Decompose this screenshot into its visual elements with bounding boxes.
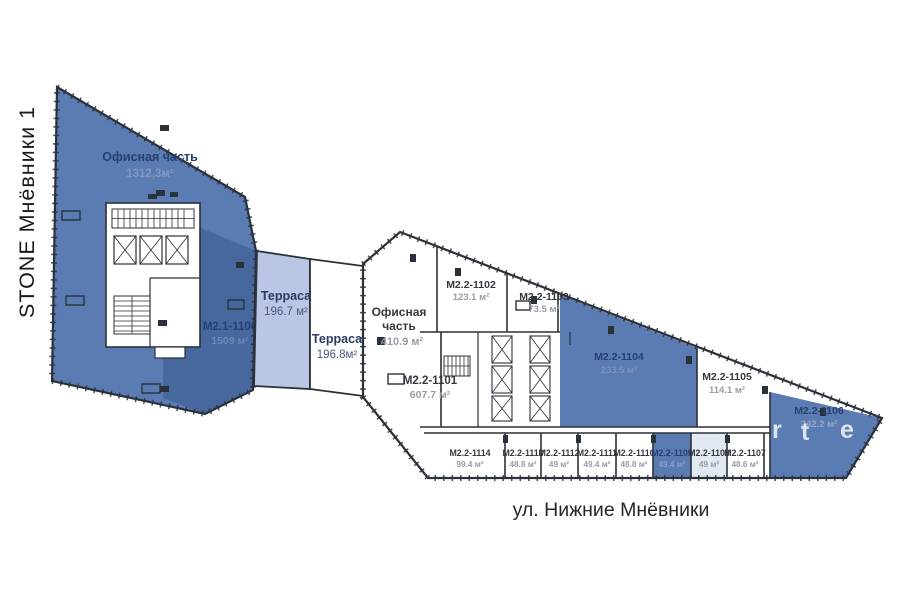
unit-area-m22-1113: 48.8 м² bbox=[510, 460, 537, 469]
elevator-icon bbox=[530, 336, 550, 421]
elevator-icon bbox=[114, 236, 136, 264]
floor-plan-page: Офисная часть 1312,3м² M2.1-1100 1509 м²… bbox=[0, 0, 900, 604]
right-office-area: 410.9 м² bbox=[381, 336, 424, 348]
left-office-area: 1312,3м² bbox=[126, 168, 174, 180]
core-lobby-exit bbox=[155, 347, 185, 358]
unit-area-m22-1109: 49.4 м² bbox=[659, 460, 686, 469]
unit-area-m22-1102: 123.1 м² bbox=[453, 292, 490, 303]
unit-area-m22-1114: 99.4 м² bbox=[457, 460, 484, 469]
unit-label-m22-1104: M2.2-1104 bbox=[594, 351, 644, 363]
unit-label-m22-1105: M2.2-1105 bbox=[702, 371, 752, 383]
unit-label-m22-1106: M2.2-1106 bbox=[794, 405, 844, 417]
terrace-1-label: Терраса bbox=[261, 289, 312, 303]
elevator-icon bbox=[140, 236, 162, 264]
unit-area-m22-1111: 49.4 м² bbox=[584, 460, 611, 469]
unit-label-m22-1107: M2.2-1107 bbox=[724, 448, 766, 458]
unit-label-m22-1109: M2.2-1109 bbox=[651, 448, 693, 458]
terrace-1-area: 196.7 м² bbox=[264, 306, 308, 318]
unit-label-m22-1112: M2.2-1112 bbox=[538, 448, 579, 458]
stairs-icon bbox=[114, 296, 150, 334]
unit-region-m22-1101[interactable] bbox=[365, 250, 437, 476]
unit-area-m22-1107: 48.6 м² bbox=[732, 460, 759, 469]
right-office-label-line1: Офисная bbox=[372, 305, 427, 319]
unit-label-m22-1113: M2.2-1113 bbox=[502, 448, 543, 458]
left-office-label: Офисная часть bbox=[102, 150, 198, 164]
unit-area-m22-1112: 49 м² bbox=[549, 460, 569, 469]
left-building: Офисная часть 1312,3м² M2.1-1100 1509 м² bbox=[52, 87, 282, 414]
unit-area-m22-1103: 73.5 м² bbox=[528, 304, 559, 315]
unit-label-m21-1100: M2.1-1100 bbox=[203, 321, 257, 333]
unit-label-m22-1114: M2.2-1114 bbox=[449, 448, 490, 458]
stairs-icon bbox=[444, 356, 470, 376]
watermark-letter: t bbox=[801, 418, 810, 446]
building-title-vertical: STONE Мнёвники 1 bbox=[15, 106, 39, 318]
unit-area-m22-1108: 49 м² bbox=[699, 460, 719, 469]
terrace-1-region[interactable] bbox=[254, 251, 310, 389]
right-building: Офисная часть 410.9 м² M2.2-1101 607.7 м… bbox=[363, 232, 882, 478]
left-building-core bbox=[106, 203, 200, 358]
unit-area-m22-1104: 233.5 м² bbox=[601, 365, 638, 376]
floor-plan-svg: Офисная часть 1312,3м² M2.1-1100 1509 м²… bbox=[0, 0, 900, 604]
elevator-icon bbox=[492, 336, 512, 421]
terraces: Терраса 196.7 м² Терраса 196.8м² bbox=[254, 251, 363, 396]
unit-label-m22-1111: M2.2-1111 bbox=[577, 448, 618, 458]
unit-label-m22-1110: M2.2-1110 bbox=[613, 448, 654, 458]
unit-label-m22-1103: M2.2-1103 bbox=[519, 291, 569, 303]
watermark-letter: e bbox=[840, 416, 854, 444]
unit-area-m22-1110: 48.8 м² bbox=[621, 460, 648, 469]
street-label: ул. Нижние Мнёвники bbox=[513, 499, 710, 521]
terrace-2-region[interactable] bbox=[310, 259, 363, 396]
unit-area-m22-1101: 607.7 м² bbox=[410, 389, 451, 401]
unit-area-m21-1100: 1509 м² bbox=[211, 335, 249, 347]
terrace-2-area: 196.8м² bbox=[317, 349, 358, 361]
terrace-2-label: Терраса bbox=[312, 332, 363, 346]
stairs-icon bbox=[112, 209, 194, 228]
unit-label-m22-1101: M2.2-1101 bbox=[403, 375, 458, 387]
watermark-letter: r bbox=[772, 416, 782, 444]
right-office-label-line2: часть bbox=[382, 319, 416, 333]
unit-area-m22-1105: 114.1 м² bbox=[709, 385, 745, 396]
elevator-icon bbox=[166, 236, 188, 264]
unit-label-m22-1102: M2.2-1102 bbox=[446, 279, 496, 291]
